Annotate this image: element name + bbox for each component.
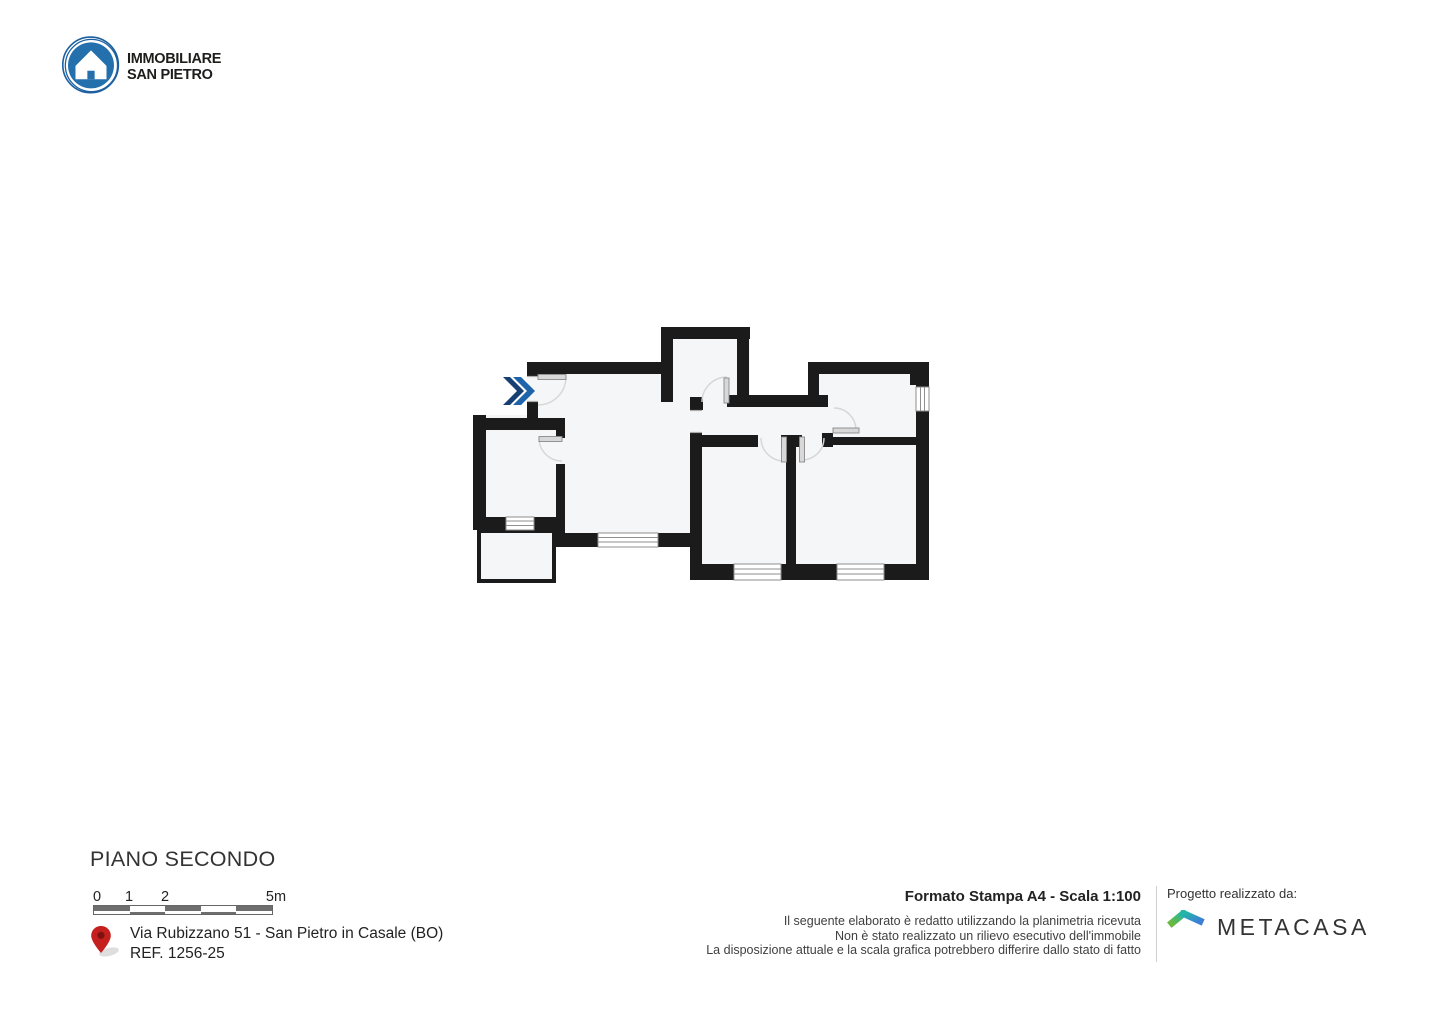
metacasa-brand-name: METACASA [1217,914,1370,941]
scale-bar [93,905,273,915]
print-info-block: Formato Stampa A4 - Scala 1:100 Il segue… [621,888,1141,958]
agency-name-line1: IMMOBILIARE [127,51,221,67]
disclaimer-line-2: Non è stato realizzato un rilievo esecut… [621,929,1141,944]
wall [690,564,929,580]
floor-plan [455,300,955,600]
disclaimer-line-3: La disposizione attuale e la scala grafi… [621,943,1141,958]
agency-logo: IMMOBILIARE SAN PIETRO [60,36,221,98]
scale-label-1: 1 [125,889,133,905]
credits-block: Progetto realizzato da: [1167,886,1370,944]
window [598,533,658,547]
wall [473,418,565,430]
reference-number: REF. 1256-25 [130,944,443,964]
wall [556,464,565,533]
metacasa-logo-icon [1167,910,1205,944]
window [506,517,534,530]
address-line: Via Rubizzano 51 - San Pietro in Casale … [130,924,443,944]
wall [527,362,673,374]
wall [527,402,538,418]
wall [690,435,758,447]
scale-label-5m: 5m [266,889,286,905]
wall [910,374,917,385]
window [734,564,781,580]
credits-label: Progetto realizzato da: [1167,886,1370,901]
scale-label-2: 2 [161,889,169,905]
house-door [87,71,94,80]
agency-logo-icon [60,36,122,98]
pin-hole [97,932,104,939]
page-title: PIANO SECONDO [90,847,276,872]
print-format-scale: Formato Stampa A4 - Scala 1:100 [621,888,1141,905]
floorplan-page: IMMOBILIARE SAN PIETRO [0,0,1440,1018]
wall [808,362,928,374]
agency-name-line2: SAN PIETRO [127,67,221,83]
wall [833,437,916,445]
window [916,387,929,411]
disclaimer-line-1: Il seguente elaborato è redatto utilizza… [621,914,1141,929]
wall [527,362,538,376]
wall [473,415,486,530]
wall [786,447,796,564]
scale-label-0: 0 [93,889,101,905]
window [837,564,884,580]
wall [690,397,703,410]
scale-bar-labels: 0 1 2 5m [93,889,293,904]
footer-divider [1156,886,1157,962]
property-address-block: Via Rubizzano 51 - San Pietro in Casale … [88,924,443,963]
wall [661,327,750,339]
balcony [479,531,554,581]
location-pin-icon [88,924,122,958]
